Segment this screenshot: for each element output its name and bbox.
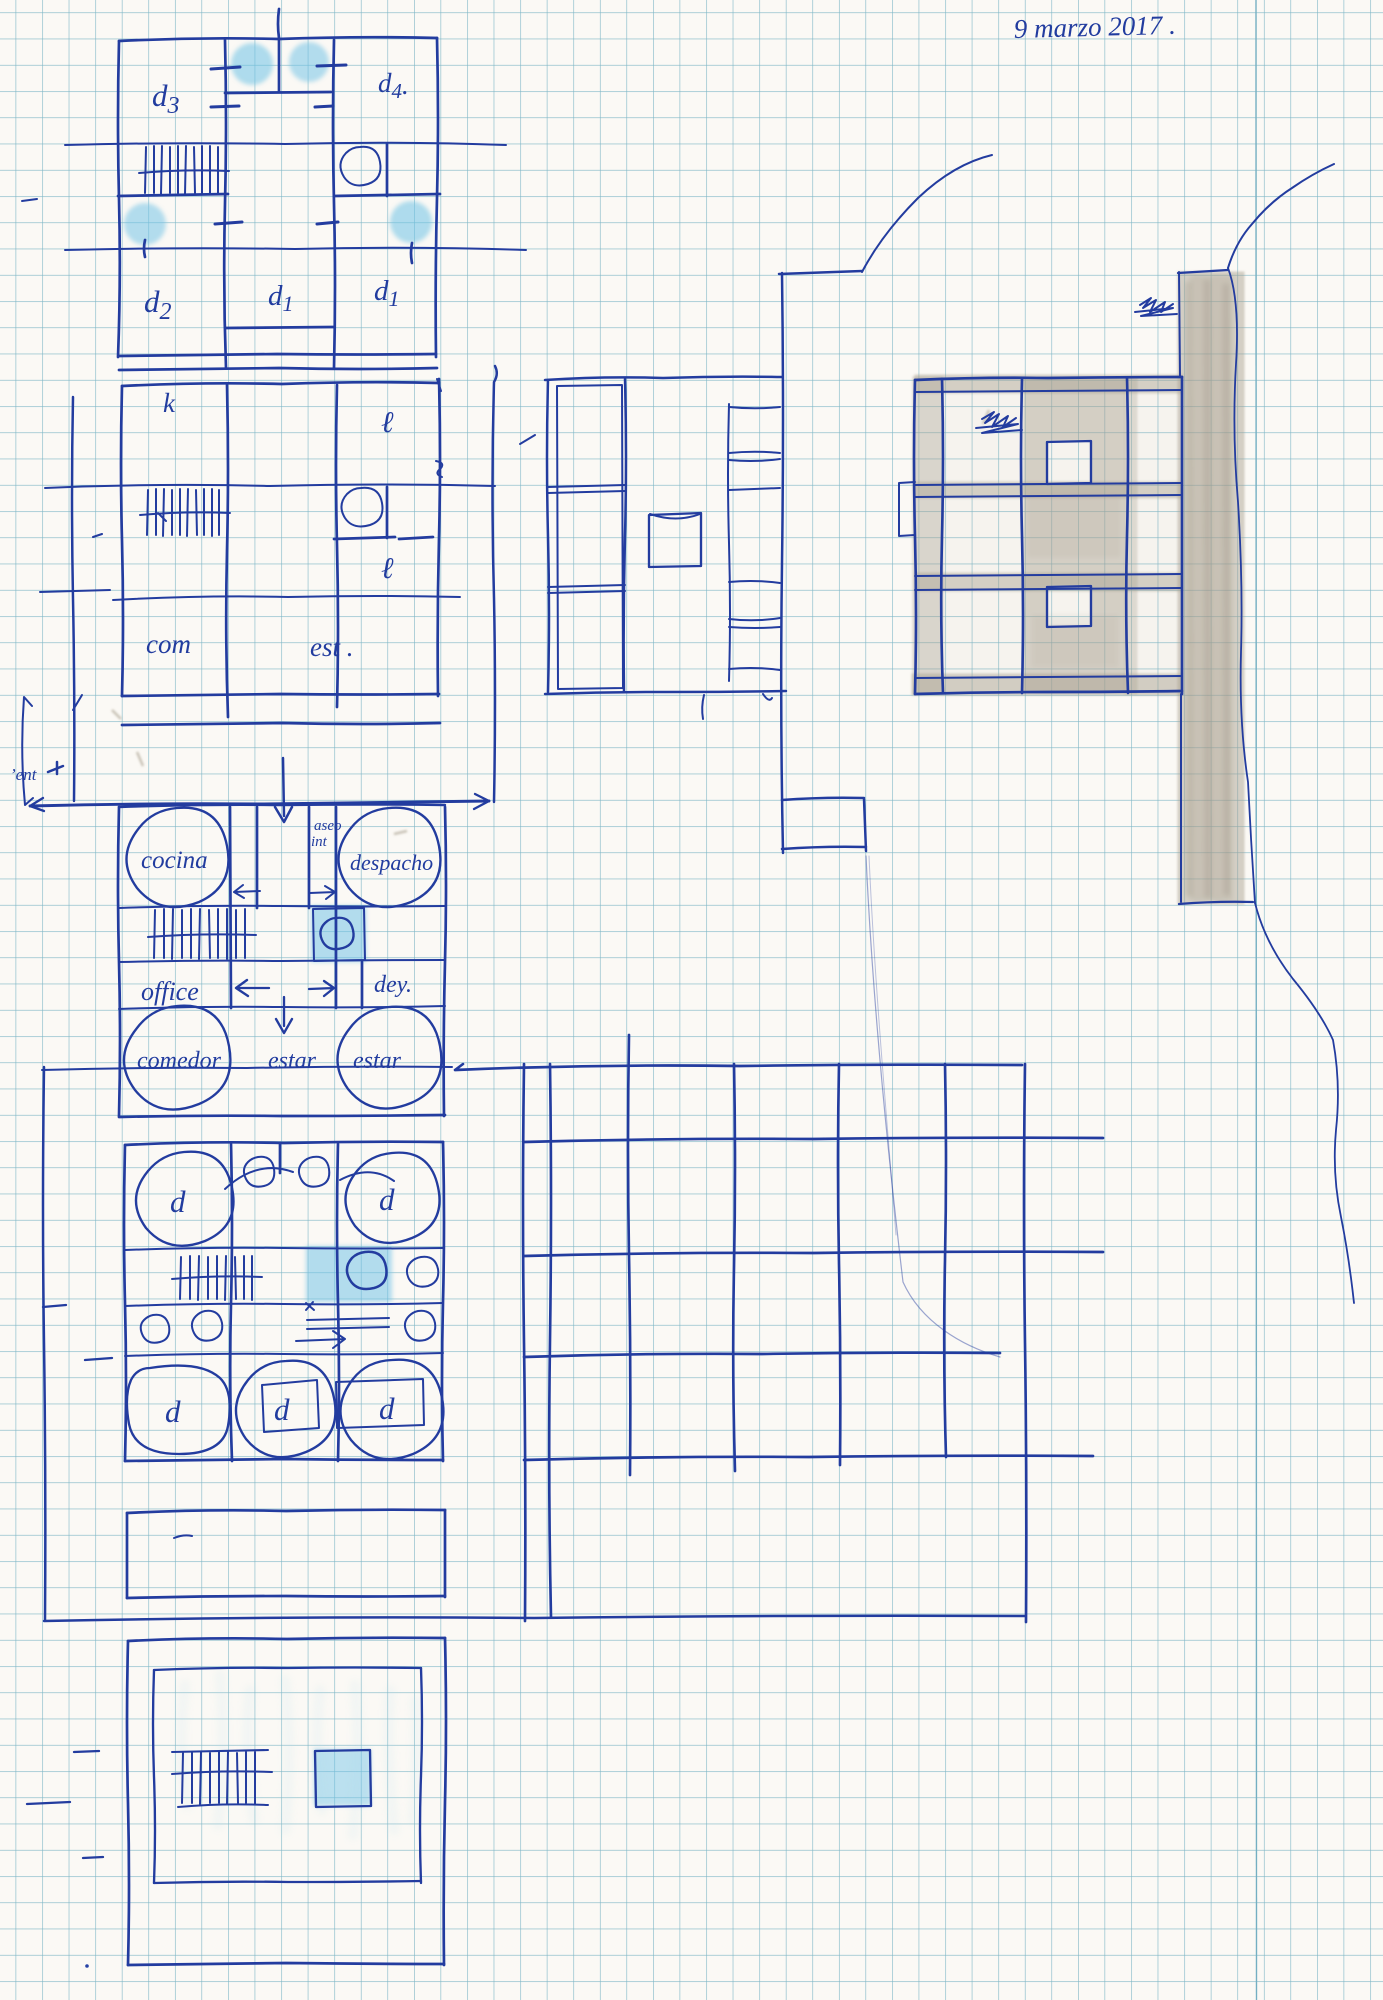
svg-text:despacho: despacho [350,850,433,875]
svg-text:office: office [141,977,199,1006]
svg-text:’ent: ’ent [10,765,38,784]
svg-text:ℓ: ℓ [381,552,394,585]
svg-text:d: d [274,1392,290,1427]
svg-text:k: k [163,388,176,418]
svg-text:int: int [311,834,328,850]
svg-text:d: d [379,1182,395,1217]
svg-text:ℓ: ℓ [381,406,394,439]
svg-text:com: com [146,629,191,659]
svg-text:comedor: comedor [137,1048,222,1074]
svg-text:9 marzo 2017 .: 9 marzo 2017 . [1013,10,1176,44]
svg-text:d: d [379,1391,395,1426]
svg-text:d: d [165,1394,181,1429]
svg-text:aseo: aseo [314,818,342,834]
svg-text:cocina: cocina [141,847,208,874]
svg-text:est .: est . [310,632,354,662]
svg-text:estar: estar [268,1048,317,1074]
svg-text:estar: estar [353,1048,402,1074]
svg-text:dey.: dey. [374,972,412,998]
svg-text:d: d [170,1184,186,1219]
